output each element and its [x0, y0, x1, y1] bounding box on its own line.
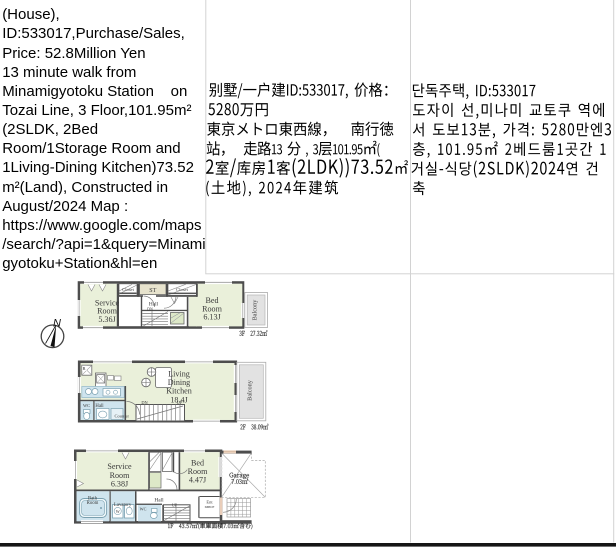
svg-text:Counter: Counter	[115, 413, 130, 418]
svg-text:Closet: Closet	[122, 287, 134, 292]
svg-text:N: N	[53, 318, 61, 330]
svg-text:Service: Service	[107, 462, 132, 471]
svg-text:Hall: Hall	[154, 497, 164, 503]
svg-text:WC: WC	[83, 403, 90, 408]
svg-text:4.47J: 4.47J	[189, 476, 206, 485]
svg-text:Balcony: Balcony	[252, 299, 259, 321]
svg-text:5.36J: 5.36J	[98, 315, 115, 324]
svg-text:Hall: Hall	[95, 404, 104, 409]
svg-text:W: W	[116, 509, 120, 514]
svg-text:UP: UP	[177, 400, 183, 405]
svg-text:Room: Room	[87, 501, 99, 506]
svg-text:DN: DN	[141, 400, 148, 405]
svg-text:rance: rance	[205, 504, 215, 509]
svg-text:6.13J: 6.13J	[203, 313, 220, 322]
svg-text:Closet: Closet	[176, 287, 188, 292]
svg-text:6.38J: 6.38J	[111, 480, 128, 489]
svg-text:UP: UP	[172, 502, 178, 507]
svg-text:Living: Living	[168, 369, 190, 378]
svg-text:ST: ST	[149, 288, 156, 294]
svg-text:Kitchen: Kitchen	[166, 387, 192, 396]
svg-text:Lavatory: Lavatory	[114, 503, 132, 508]
svg-text:WC: WC	[140, 507, 147, 512]
svg-text:DN: DN	[147, 307, 153, 312]
svg-text:Dining: Dining	[168, 378, 190, 387]
svg-text:Balcony: Balcony	[247, 379, 254, 401]
